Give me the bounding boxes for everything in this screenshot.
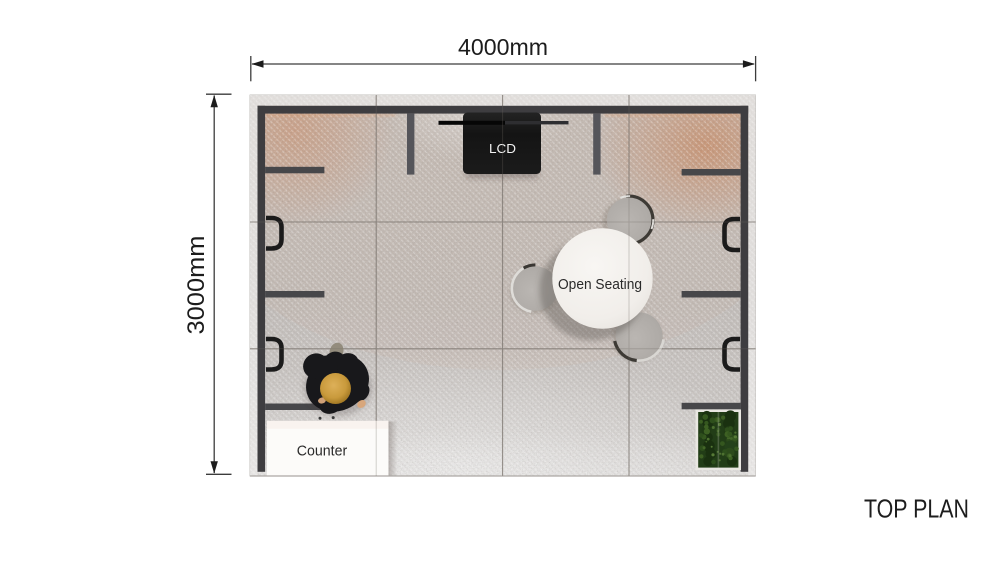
svg-text:Counter: Counter — [297, 443, 348, 460]
svg-text:4000mm: 4000mm — [458, 34, 548, 60]
svg-text:TOP PLAN: TOP PLAN — [864, 494, 969, 524]
svg-text:3000mm: 3000mm — [183, 236, 210, 335]
